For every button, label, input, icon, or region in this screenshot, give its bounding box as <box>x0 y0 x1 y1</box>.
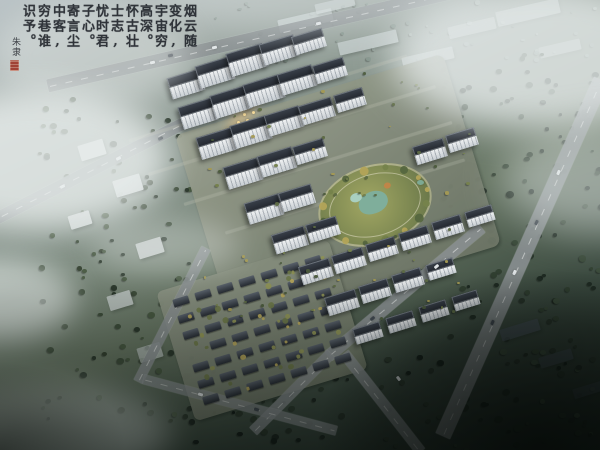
forest-right <box>574 345 577 348</box>
compound-landscaping <box>348 249 352 252</box>
forest-bottom <box>339 413 346 419</box>
forest-right <box>514 425 521 431</box>
forest-right <box>470 315 476 320</box>
greenbelt-left <box>183 414 188 419</box>
compound-landscaping <box>466 182 470 185</box>
road-south-branch <box>339 349 425 450</box>
forest-right <box>591 286 596 290</box>
compound-landscaping <box>242 255 245 258</box>
compound-landscaping <box>251 135 255 138</box>
context-building <box>106 289 133 310</box>
forest-bottom <box>429 368 434 373</box>
compound-landscaping <box>258 108 261 111</box>
greenbelt-left <box>121 273 124 276</box>
compound-landscaping <box>434 165 437 167</box>
greenbelt-left <box>50 233 56 238</box>
poem-column: 士志, <box>109 4 122 51</box>
greenbelt-left <box>172 412 178 417</box>
compound-landscaping <box>452 310 455 313</box>
greenbelt-left <box>156 368 163 374</box>
compound-landscaping <box>244 301 246 303</box>
forest-right <box>532 349 539 355</box>
forest-right <box>495 416 503 423</box>
forest-right <box>539 308 544 312</box>
compound-landscaping <box>363 194 365 196</box>
villa-roof <box>219 370 237 382</box>
compound-landscaping <box>204 276 206 278</box>
forest-right <box>547 319 552 323</box>
poem-column: 忧时君 <box>94 4 107 49</box>
forest-bottom <box>559 413 566 419</box>
forest-bottom <box>406 371 411 375</box>
forest-bottom <box>507 430 511 433</box>
forest-right <box>579 255 587 262</box>
forest-bottom <box>320 435 325 439</box>
compound-landscaping <box>363 72 366 75</box>
forest-bottom <box>286 428 293 434</box>
poem-column: 变化, <box>167 4 180 51</box>
greenbelt-left <box>154 195 158 198</box>
compound-landscaping <box>441 306 444 308</box>
compound-landscaping <box>445 191 449 194</box>
compound-landscaping <box>228 308 232 311</box>
forest-bottom <box>514 397 519 401</box>
villa-roof <box>214 354 232 366</box>
greenbelt-left <box>79 289 86 295</box>
forest-bottom <box>590 357 596 362</box>
forest-bottom <box>384 437 389 441</box>
residential-tower <box>312 56 348 84</box>
villa-tree <box>291 270 296 275</box>
villa-roof <box>253 324 271 336</box>
villa-tree <box>206 315 212 321</box>
compound-landscaping <box>331 173 334 176</box>
artist-seal <box>10 60 19 71</box>
car <box>197 392 203 396</box>
forest-bottom <box>400 380 405 384</box>
villa-tree <box>215 305 222 312</box>
poem-column: 宇宙穷 <box>153 4 166 49</box>
car-dark <box>253 407 259 411</box>
compound-landscaping <box>422 306 426 309</box>
compound-landscaping <box>322 136 325 138</box>
compound-landscaping <box>321 90 325 93</box>
villa-roof <box>307 343 325 355</box>
forest-bottom <box>319 387 324 391</box>
compound-landscaping <box>218 170 221 173</box>
poem-column: 识予。 <box>21 4 34 49</box>
greenbelt-left <box>115 324 121 329</box>
greenbelt-left <box>98 313 102 317</box>
forest-right <box>500 349 506 354</box>
greenbelt-left <box>122 277 127 281</box>
forest-right <box>540 399 546 404</box>
forest-right <box>448 334 455 340</box>
forest-right <box>553 298 560 304</box>
villa-tree <box>193 341 198 346</box>
greenbelt-left <box>141 337 144 340</box>
forest-bottom <box>424 402 429 406</box>
forest-right <box>519 298 525 303</box>
forest-bottom <box>584 420 588 423</box>
forest-bottom <box>481 402 487 407</box>
forest-bottom <box>557 366 561 370</box>
forest-bottom <box>394 444 398 448</box>
greenbelt-left <box>185 188 189 191</box>
forest-right <box>479 418 483 421</box>
compound-landscaping <box>216 304 218 306</box>
greenbelt-left <box>82 276 86 279</box>
haze-right <box>500 125 600 235</box>
greenbelt-left <box>126 358 130 361</box>
compound-landscaping <box>380 317 383 320</box>
context-trees-top <box>341 32 344 35</box>
forest-bottom <box>576 365 582 370</box>
forest-bottom <box>564 362 568 365</box>
forest-bottom <box>515 359 520 363</box>
residential-tower <box>451 289 480 311</box>
forest-right <box>569 338 573 341</box>
forest-bottom <box>193 440 198 445</box>
forest-bottom <box>506 362 510 365</box>
plaza-light <box>252 111 255 114</box>
forest-right <box>590 267 593 270</box>
forest-right <box>512 240 518 245</box>
forest-right <box>454 444 457 447</box>
calligraphy-poem: 烟云随 变化, 宇宙穷 高深。 怀古壮 士志, 忧时君 子心。 寄言尘 中客, … <box>0 0 210 140</box>
forest-bottom <box>437 360 443 366</box>
greenbelt-left <box>141 204 147 209</box>
greenbelt-left <box>169 419 172 422</box>
forest-bottom <box>346 378 349 381</box>
villa-roof <box>241 363 259 375</box>
villa-tree <box>271 345 276 350</box>
poem-column: 怀古壮 <box>124 4 137 49</box>
residential-tower <box>277 64 318 96</box>
plaza-light <box>243 113 246 116</box>
compound-landscaping <box>427 300 430 303</box>
greenbelt-left <box>77 266 83 271</box>
forest-bottom <box>426 419 431 424</box>
poem-column: 子心。 <box>80 4 93 49</box>
forest-bottom <box>583 424 587 427</box>
compound-landscaping <box>392 103 395 105</box>
greenbelt-left <box>47 347 54 353</box>
villa-tree <box>240 354 247 361</box>
forest-bottom <box>289 406 294 410</box>
villa-tree <box>233 341 237 345</box>
car <box>395 375 400 381</box>
villa-tree <box>278 365 283 370</box>
residential-tower <box>385 310 416 333</box>
greenbelt-left <box>174 187 179 191</box>
forest-bottom <box>589 433 592 436</box>
forest-bottom <box>526 422 529 425</box>
forest-bottom <box>271 438 278 444</box>
villa-roof <box>329 336 347 348</box>
poem-column: 寄言尘 <box>65 4 78 49</box>
forest-bottom <box>380 385 384 389</box>
greenbelt-left <box>82 269 87 273</box>
forest-right <box>542 274 546 277</box>
greenbelt-left <box>148 312 154 317</box>
forest-bottom <box>189 419 195 424</box>
small-pool <box>417 180 424 185</box>
forest-right <box>514 442 520 447</box>
greenbelt-left <box>176 276 182 281</box>
villa-tree <box>298 348 304 354</box>
compound-landscaping <box>334 193 337 196</box>
forest-right <box>596 268 600 273</box>
villa-roof <box>182 328 200 340</box>
forest-right <box>460 286 466 291</box>
forest-right <box>553 233 558 237</box>
forest-right <box>565 287 570 291</box>
greenbelt-left <box>111 285 118 291</box>
residential-tower <box>418 299 449 322</box>
greenbelt-left <box>80 372 87 378</box>
greenbelt-left <box>134 327 140 332</box>
context-trees-top <box>366 57 370 61</box>
greenbelt-left <box>120 344 126 349</box>
poem-column: 高深。 <box>138 4 151 49</box>
villa-tree <box>228 381 233 386</box>
compound-landscaping <box>417 151 421 154</box>
villa-tree <box>261 317 265 321</box>
compound-landscaping <box>402 270 405 273</box>
compound-landscaping <box>312 148 315 150</box>
artist-signature: 朱隶 <box>9 37 22 57</box>
greenbelt-left <box>131 291 137 296</box>
forest-bottom <box>569 418 574 423</box>
fog-center-wisp <box>90 218 240 273</box>
compound-landscaping <box>245 259 248 262</box>
fog-bottom-left <box>0 385 170 450</box>
villa-roof <box>209 337 227 349</box>
forest-right <box>491 272 497 277</box>
villa-roof <box>192 360 210 372</box>
compound-landscaping <box>426 107 428 109</box>
forest-bottom <box>417 355 422 360</box>
context-building-dark <box>572 381 600 399</box>
compound-landscaping <box>314 275 317 278</box>
greenbelt-left <box>92 356 96 360</box>
greenbelt-left <box>76 240 80 243</box>
context-building-dark <box>499 318 541 341</box>
forest-bottom <box>236 411 242 416</box>
greenbelt-left <box>170 158 174 161</box>
car <box>211 45 217 49</box>
greenbelt-left <box>76 368 79 371</box>
forest-right <box>544 307 547 310</box>
forest-right <box>525 290 531 295</box>
compound-landscaping <box>445 260 448 263</box>
villa-roof <box>302 327 320 339</box>
compound-landscaping <box>274 164 278 167</box>
villa-tree <box>204 345 209 350</box>
poem-column: 中客, <box>51 4 64 51</box>
compound-landscaping <box>211 139 214 141</box>
compound-landscaping <box>337 279 340 281</box>
forest-bottom <box>575 430 582 436</box>
compound-landscaping <box>425 279 429 282</box>
greenbelt-left <box>117 358 123 363</box>
aerial-render-scene: 烟云随 变化, 宇宙穷 高深。 怀古壮 士志, 忧时君 子心。 寄言尘 中客, … <box>0 0 600 450</box>
poem-column: 烟云随 <box>182 4 195 49</box>
forest-bottom <box>232 411 235 414</box>
forest-right <box>558 371 565 377</box>
forest-right <box>492 173 496 176</box>
forest-right <box>553 316 559 321</box>
compound-landscaping <box>275 202 279 205</box>
forest-right <box>537 276 543 281</box>
compound-landscaping <box>373 279 375 281</box>
forest-right <box>574 413 581 419</box>
forest-right <box>540 350 546 355</box>
compound-landscaping <box>358 192 360 194</box>
forest-right <box>467 285 470 288</box>
forest-right <box>503 389 510 395</box>
villa-roof <box>177 311 195 323</box>
villa-tree <box>280 293 285 298</box>
villa-roof <box>280 333 298 345</box>
villa-roof <box>292 294 310 306</box>
compound-landscaping <box>304 117 306 119</box>
forest-bottom <box>237 432 242 437</box>
forest-right <box>542 439 547 443</box>
villa-tree <box>336 329 342 335</box>
compound-landscaping <box>284 292 287 294</box>
poem-column: 穷巷谁 <box>36 4 49 49</box>
compound-landscaping <box>306 269 310 272</box>
forest-bottom <box>385 357 390 361</box>
road-centerline <box>344 354 419 450</box>
compound-landscaping <box>457 282 460 284</box>
greenbelt-left <box>62 324 68 329</box>
compound-landscaping <box>394 235 396 237</box>
compound-landscaping <box>413 259 415 261</box>
forest-bottom <box>312 398 316 402</box>
villa-tree <box>210 365 216 371</box>
forest-right <box>494 283 499 287</box>
villa-roof <box>204 321 222 333</box>
forest-right <box>524 353 527 356</box>
forest-bottom <box>296 438 301 442</box>
greenbelt-left <box>102 352 107 356</box>
